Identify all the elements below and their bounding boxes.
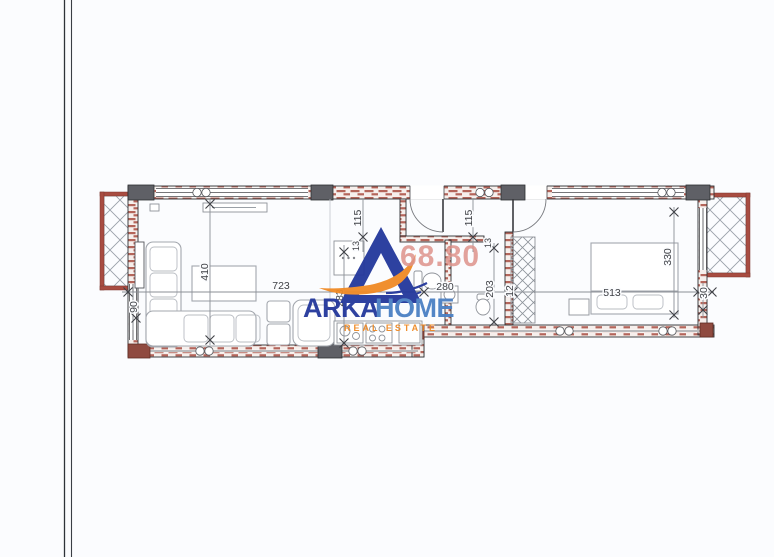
tv-console [150,203,267,212]
dim-living-width: 723 [272,280,290,292]
dim-right-jog: 30 [698,287,710,299]
dim-bedroom-width: 513 [603,287,621,299]
floor-plan: 90 723 410 283 115 13 12 280 115 13 203 … [0,0,774,557]
logo-word-secondary: HOME [375,293,454,323]
dim-bedroom-depth: 330 [662,248,674,266]
dim-right-door-small: 13 [483,238,493,248]
bedroom-door [513,199,546,232]
dim-left-door-offset: 115 [352,209,364,226]
logo-tagline: REAL ESTATE [344,323,438,333]
logo-word-primary: ARKA [303,293,379,323]
dim-balcony-left: 90 [128,301,140,313]
dim-entry-width: 12 [504,285,516,297]
dim-right-door-offset: 115 [463,209,475,226]
wardrobe [511,237,535,323]
nightstand [569,299,589,315]
dim-living-depth: 410 [199,263,211,281]
entry-door [410,199,443,232]
dim-hall-width: 280 [436,281,454,293]
dim-corridor-depth: 203 [484,280,496,298]
right-balcony [702,193,750,277]
page-edge-line [65,0,72,557]
scanned-floor-plan-page: 90 723 410 283 115 13 12 280 115 13 203 … [0,0,774,557]
balcony-door-leaf [135,242,144,288]
wc-bowl [476,299,490,315]
dim-left-door-small: 13 [351,241,361,251]
area-label: 68.80 [400,240,480,273]
